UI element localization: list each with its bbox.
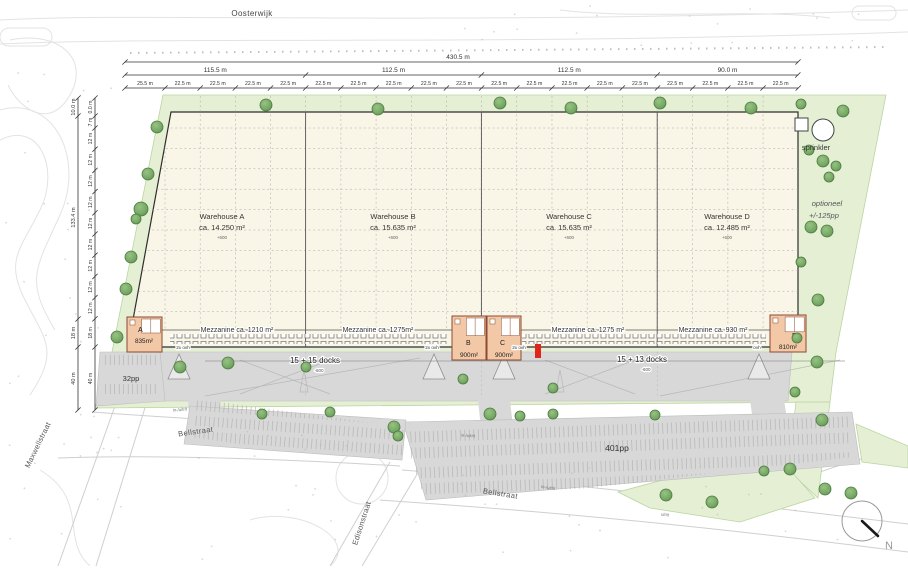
dim-bay-label: 22.5 m [738,81,754,87]
dim-bay-label: 22.5 m [526,81,542,87]
dim-section-label: 115.5 m [204,67,227,74]
warehouse-name: Warehouse B [370,212,415,221]
overhead-door-label: 2x ovh [176,345,190,350]
dim-bay-label: 22.5 m [421,81,437,87]
tree-icon [548,409,558,419]
dim-left-label: 12 m [88,302,94,314]
tree-icon [831,161,841,171]
parking-main-label: 401pp [605,443,629,453]
tree-icon [837,105,849,117]
warehouse-area: ca. 15.635 m² [546,223,592,232]
tree-icon [650,410,660,420]
dim-bay-label: 22.5 m [597,81,613,87]
dim-left-label: 12 m [88,239,94,251]
warehouse-level: +600 [722,235,733,240]
tree-icon [393,431,403,441]
dim-left-label: 10.0 m [71,98,77,115]
tree-icon [484,408,496,420]
warehouse-level: +600 [217,235,228,240]
mezzanine-label: Mezzanine ca. 1210 m² [201,327,274,334]
tree-icon [372,103,384,115]
office-letter: C [500,340,505,347]
site-plan-drawing: Warehouse Aca. 14.250 m²+600Mezzanine ca… [0,0,908,566]
office-block-B: B900m² [452,316,486,360]
tree-icon [792,333,802,343]
parking-west-label: 32pp [123,374,140,383]
access-label: in-/uitrit [461,433,476,439]
dim-left-label: 40 m [71,372,77,385]
dim-left-label: 12 m [88,154,94,166]
tree-icon [660,489,672,501]
warehouse-area: ca. 15.635 m² [370,223,416,232]
office-letter: A [138,327,143,334]
tree-icon [222,357,234,369]
overhead-door-label: 2x ovh [425,345,439,350]
dim-bay-label: 22.5 m [773,81,789,87]
access-label: uitrit [661,512,671,518]
red-marker [535,344,541,358]
warehouse-level: +600 [564,235,575,240]
mezzanine-label: Mezzanine ca. 1275 m² [552,327,625,334]
street-edisonstraat: Edisonstraat [350,500,373,546]
tree-icon [824,172,834,182]
tree-icon [301,362,311,372]
mezzanine-label: Mezzanine ca. 930 m² [679,327,749,334]
tree-icon [796,99,806,109]
docks-level: -600 [314,368,324,373]
tree-icon [494,97,506,109]
dim-left-label: 12 m [88,133,94,145]
tree-icon [816,414,828,426]
tree-icon [706,496,718,508]
tree-icon [845,487,857,499]
street-oosterwijk: Oosterwijk [231,9,273,18]
office-area: 810m² [779,344,797,351]
tree-icon [125,251,137,263]
dim-left-label: 18 m [88,327,94,339]
sprinkler-tank-square-icon [795,118,808,131]
dim-bay-label: 22.5 m [210,81,226,87]
tree-icon [654,97,666,109]
tree-icon [120,283,132,295]
office-area: 900m² [460,352,478,359]
docks-level: -600 [641,367,651,372]
dim-left-label: 40 m [88,373,94,385]
dock-doors-band-east [522,334,766,344]
dim-bay-label: 22.5 m [702,81,718,87]
dim-left-label: 12 m [88,218,94,230]
tree-icon [131,214,141,224]
dim-bay-label: 22.5 m [456,81,472,87]
sprinkler-label: sprinkler [802,143,831,152]
overhead-door-label: ovh [753,345,761,350]
dim-bay-label: 22.5 m [315,81,331,87]
dim-left-label: 133.4 m [71,207,77,228]
office-block-C: C900m² [487,316,521,360]
dim-bay-label: 22.5 m [562,81,578,87]
tree-icon [142,168,154,180]
access-label: in-/uitrit [172,406,188,412]
warehouse-name: Warehouse D [704,212,750,221]
tree-icon [819,483,831,495]
dim-bay-label: 22.5 m [175,81,191,87]
dim-left-label: 12 m [88,175,94,187]
tree-icon [784,463,796,475]
tree-icon [458,374,468,384]
warehouse-area: ca. 14.250 m² [199,223,245,232]
overhead-door-label: 2x ovh [512,345,526,350]
optional-parking-line1: optioneel [812,199,843,208]
tree-icon [565,102,577,114]
tree-icon [515,411,525,421]
tree-icon [759,466,769,476]
office-area: 900m² [495,352,513,359]
dim-section-label: 90.0 m [718,67,738,74]
office-letter: B [466,340,471,347]
dim-bay-label: 22.5 m [632,81,648,87]
dim-left-label: 12 m [88,281,94,293]
tree-icon [796,257,806,267]
tree-icon [325,407,335,417]
warehouse-name: Warehouse A [200,212,245,221]
dim-section-label: 112.5 m [382,67,405,74]
dim-bay-label: 22.5 m [245,81,261,87]
office-block-D: D810m² [770,315,806,352]
warehouse-level: +600 [388,235,399,240]
tree-icon [817,155,829,167]
dim-bay-label: 22.5 m [667,81,683,87]
north-label: N [885,540,893,552]
dim-left-label: 0.0 m [88,101,94,114]
tree-icon [811,356,823,368]
tree-icon [790,387,800,397]
docks-label: 15 + 13 docks [617,355,667,364]
tree-icon [745,102,757,114]
mezzanine-label: Mezzanine ca. 1275m² [343,327,414,334]
dim-left-label: 12 m [88,260,94,272]
warehouse-area: ca. 12.485 m² [704,223,750,232]
tree-icon [174,361,186,373]
tree-icon [812,294,824,306]
tree-icon [548,383,558,393]
dim-bay-label: 25.5 m [137,81,153,87]
tree-icon [821,225,833,237]
street-maxwellstraat: Maxwellstraat [23,420,53,469]
dim-left-label: 12 m [88,196,94,208]
dim-bay-label: 22.5 m [280,81,296,87]
optional-parking-line2: +/-125pp [809,211,839,220]
dim-bay-label: 22.5 m [491,81,507,87]
sprinkler-tank-circle-icon [812,119,834,141]
tree-icon [257,409,267,419]
warehouse-name: Warehouse C [546,212,592,221]
docks-label: 15 + 15 docks [290,356,340,365]
dim-section-label: 112.5 m [558,67,581,74]
office-area: 835m² [135,338,153,345]
hedge-row [130,47,890,53]
north-arrow-needle [862,521,878,536]
office-block-A: A835m² [127,317,162,352]
dim-left-label: 18 m [71,326,77,339]
tree-icon [805,221,817,233]
dim-bay-label: 22.5 m [351,81,367,87]
dim-total-label: 430.5 m [446,54,470,61]
dim-bay-label: 22.5 m [386,81,402,87]
tree-icon [260,99,272,111]
dim-left-label: 7 m [88,118,94,127]
tree-icon [111,331,123,343]
tree-icon [151,121,163,133]
dock-doors-band-west [170,334,448,344]
